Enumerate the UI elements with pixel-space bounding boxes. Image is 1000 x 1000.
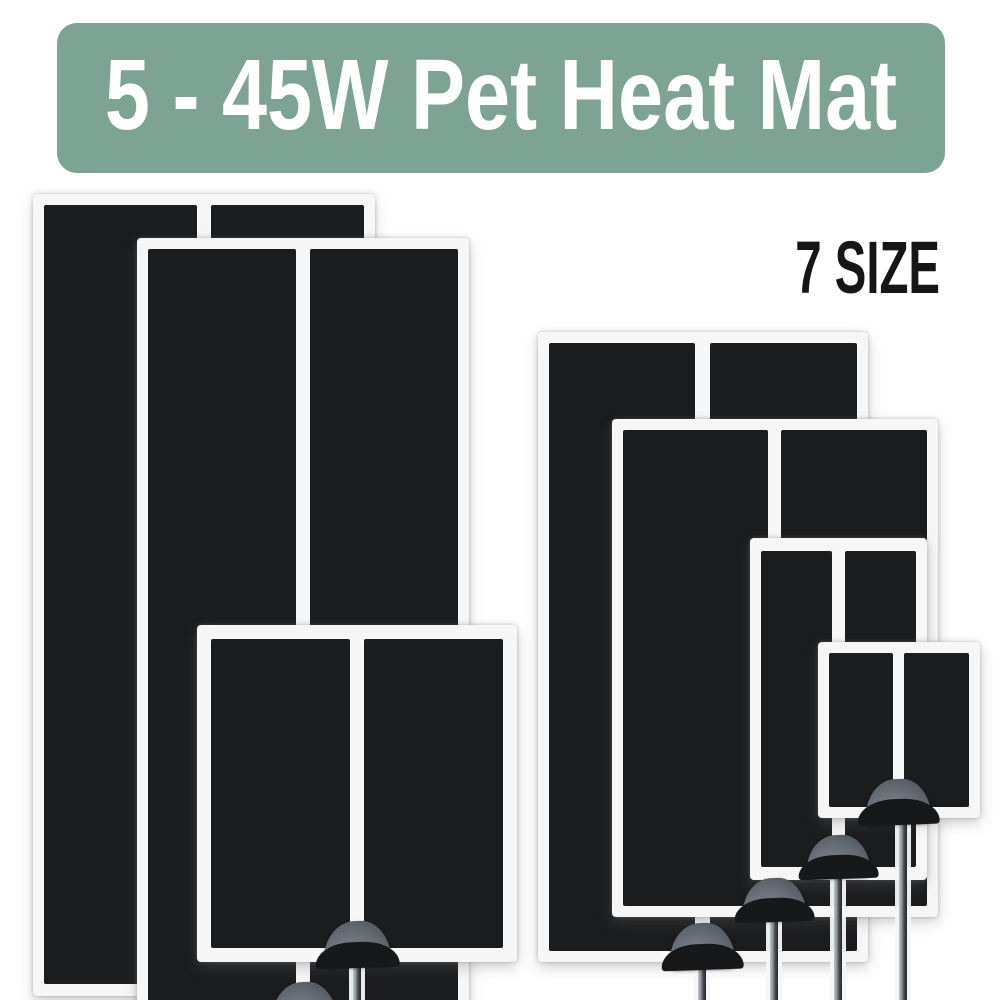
product-image: 5 - 45W Pet Heat Mat 7 SIZE	[0, 0, 1000, 1000]
size-count-label: 7 SIZE	[684, 238, 940, 298]
title-banner: 5 - 45W Pet Heat Mat	[57, 23, 945, 173]
heat-mat-3	[197, 625, 517, 962]
heat-panel-right	[364, 639, 503, 948]
power-cable	[834, 869, 842, 1000]
heat-panel-left	[623, 430, 768, 906]
power-cable	[770, 912, 778, 1000]
heat-panel-left	[211, 639, 350, 948]
product-title: 5 - 45W Pet Heat Mat	[105, 45, 897, 151]
power-cable	[899, 815, 907, 1000]
